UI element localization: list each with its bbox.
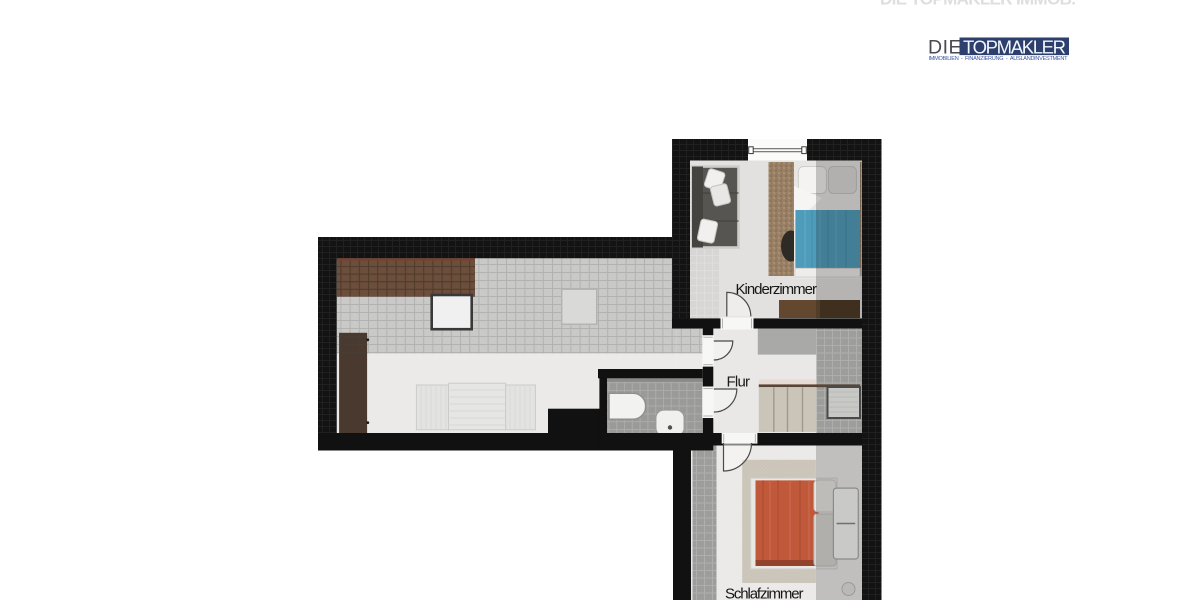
svg-text:Schlafzimmer: Schlafzimmer (725, 586, 804, 600)
svg-text:IMMOBILIEN - FINANZIERUNG -: IMMOBILIEN - FINANZIERUNG - AUSLANDINVES… (929, 56, 1069, 62)
svg-text:Flur: Flur (727, 374, 751, 391)
svg-text:TOPMAKLER: TOPMAKLER (963, 37, 1066, 58)
svg-text:DIE TOPMAKLER IMMOB.: DIE TOPMAKLER IMMOB. (880, 0, 1076, 9)
svg-text:Kinderzimmer: Kinderzimmer (736, 281, 818, 298)
